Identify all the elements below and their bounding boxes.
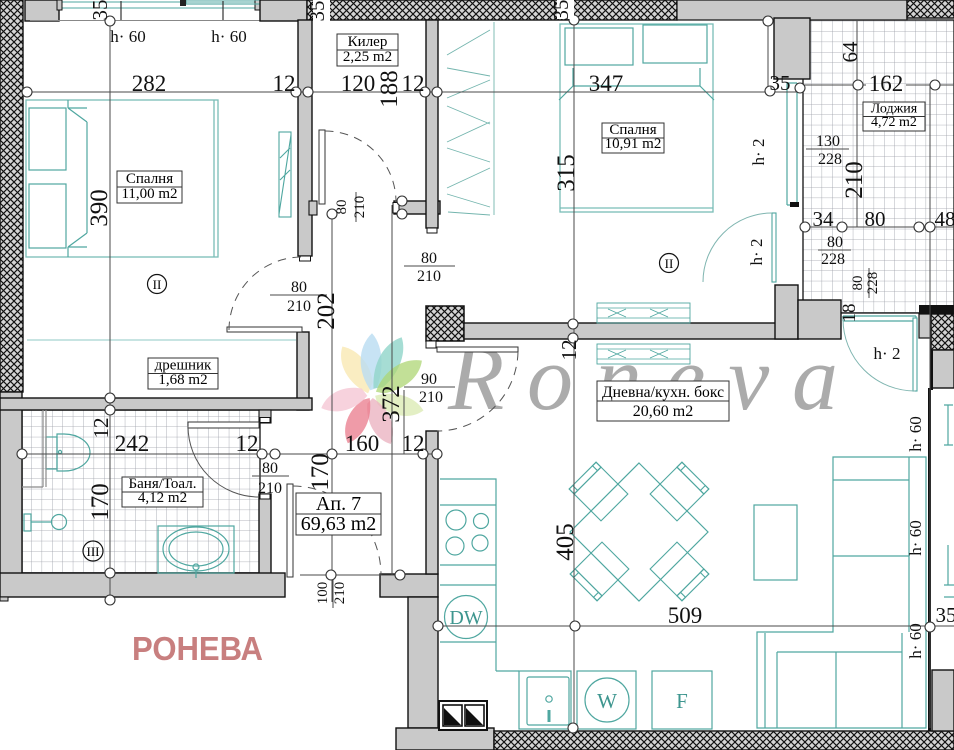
svg-text:35: 35 bbox=[88, 0, 112, 21]
svg-text:202: 202 bbox=[313, 292, 340, 330]
svg-text:35: 35 bbox=[770, 71, 791, 95]
svg-text:69,63 m2: 69,63 m2 bbox=[301, 513, 377, 535]
svg-text:228: 228 bbox=[865, 272, 881, 295]
svg-text:48: 48 bbox=[935, 207, 954, 231]
svg-text:405: 405 bbox=[552, 523, 579, 561]
svg-text:12: 12 bbox=[236, 431, 259, 456]
svg-text:h· 60: h· 60 bbox=[906, 416, 925, 451]
svg-text:80: 80 bbox=[291, 279, 307, 296]
svg-text:170: 170 bbox=[307, 453, 334, 491]
svg-text:130: 130 bbox=[816, 133, 840, 150]
svg-text:12: 12 bbox=[89, 418, 113, 439]
svg-text:h· 60: h· 60 bbox=[906, 623, 925, 658]
svg-text:h· 60: h· 60 bbox=[906, 520, 925, 555]
svg-text:315: 315 bbox=[553, 154, 580, 192]
svg-text:80: 80 bbox=[827, 234, 843, 251]
svg-text:35: 35 bbox=[549, 0, 573, 21]
svg-text:Килер: Килер bbox=[348, 34, 388, 50]
svg-text:РОНЕВА: РОНЕВА bbox=[132, 630, 263, 667]
svg-text:W: W bbox=[597, 689, 617, 713]
svg-text:4,12 m2: 4,12 m2 bbox=[138, 490, 187, 506]
svg-text:210: 210 bbox=[332, 582, 348, 605]
svg-text:11,00 m2: 11,00 m2 bbox=[121, 186, 177, 202]
svg-text:20,60 m2: 20,60 m2 bbox=[633, 403, 693, 420]
svg-text:12: 12 bbox=[557, 340, 581, 361]
svg-text:Спалня: Спалня bbox=[126, 171, 173, 187]
svg-text:188: 188 bbox=[376, 70, 403, 108]
svg-text:120: 120 bbox=[341, 71, 376, 96]
svg-text:347: 347 bbox=[589, 71, 624, 96]
svg-text:210: 210 bbox=[419, 389, 443, 406]
svg-text:170: 170 bbox=[87, 483, 114, 521]
svg-text:80: 80 bbox=[334, 200, 350, 215]
svg-text:12: 12 bbox=[273, 71, 296, 96]
svg-text:18: 18 bbox=[839, 304, 860, 323]
svg-text:h· 2: h· 2 bbox=[874, 344, 901, 363]
svg-text:160: 160 bbox=[345, 431, 380, 456]
svg-text:h· 60: h· 60 bbox=[110, 27, 145, 46]
svg-text:12: 12 bbox=[402, 71, 425, 96]
svg-text:h· 2: h· 2 bbox=[747, 239, 766, 266]
svg-text:282: 282 bbox=[132, 71, 167, 96]
svg-text:80: 80 bbox=[850, 276, 866, 291]
svg-text:210: 210 bbox=[258, 480, 282, 497]
svg-text:210: 210 bbox=[352, 196, 368, 219]
svg-text:35: 35 bbox=[936, 603, 954, 627]
svg-text:509: 509 bbox=[668, 603, 703, 628]
svg-text:Ап. 7: Ап. 7 bbox=[316, 493, 361, 515]
svg-text:34: 34 bbox=[813, 207, 835, 231]
svg-text:90: 90 bbox=[421, 371, 437, 388]
svg-text:II: II bbox=[153, 277, 162, 292]
svg-text:80: 80 bbox=[262, 460, 278, 477]
svg-text:III: III bbox=[87, 544, 100, 559]
svg-text:1,68 m2: 1,68 m2 bbox=[158, 372, 207, 388]
svg-text:80: 80 bbox=[865, 207, 886, 231]
svg-text:80: 80 bbox=[421, 250, 437, 267]
svg-text:390: 390 bbox=[86, 189, 113, 227]
svg-text:12: 12 bbox=[402, 431, 425, 456]
svg-text:Дневна/кухн. бокс: Дневна/кухн. бокс bbox=[602, 384, 724, 401]
svg-text:II: II bbox=[665, 256, 674, 271]
svg-text:35: 35 bbox=[305, 1, 329, 22]
svg-text:210: 210 bbox=[417, 268, 441, 285]
svg-text:162: 162 bbox=[869, 71, 904, 96]
svg-text:100: 100 bbox=[315, 582, 331, 605]
svg-text:372: 372 bbox=[378, 385, 405, 423]
svg-text:228: 228 bbox=[821, 251, 845, 268]
svg-text:F: F bbox=[676, 689, 688, 713]
svg-text:210: 210 bbox=[287, 298, 311, 315]
svg-text:h· 2: h· 2 bbox=[749, 139, 768, 166]
svg-text:242: 242 bbox=[115, 431, 150, 456]
svg-text:h· 60: h· 60 bbox=[211, 27, 246, 46]
svg-text:2,25 m2: 2,25 m2 bbox=[343, 49, 392, 65]
svg-text:4,72 m2: 4,72 m2 bbox=[871, 115, 917, 130]
svg-text:64: 64 bbox=[838, 41, 862, 63]
svg-text:228: 228 bbox=[818, 151, 842, 168]
svg-text:10,91 m2: 10,91 m2 bbox=[605, 136, 662, 152]
svg-text:210: 210 bbox=[841, 161, 868, 199]
